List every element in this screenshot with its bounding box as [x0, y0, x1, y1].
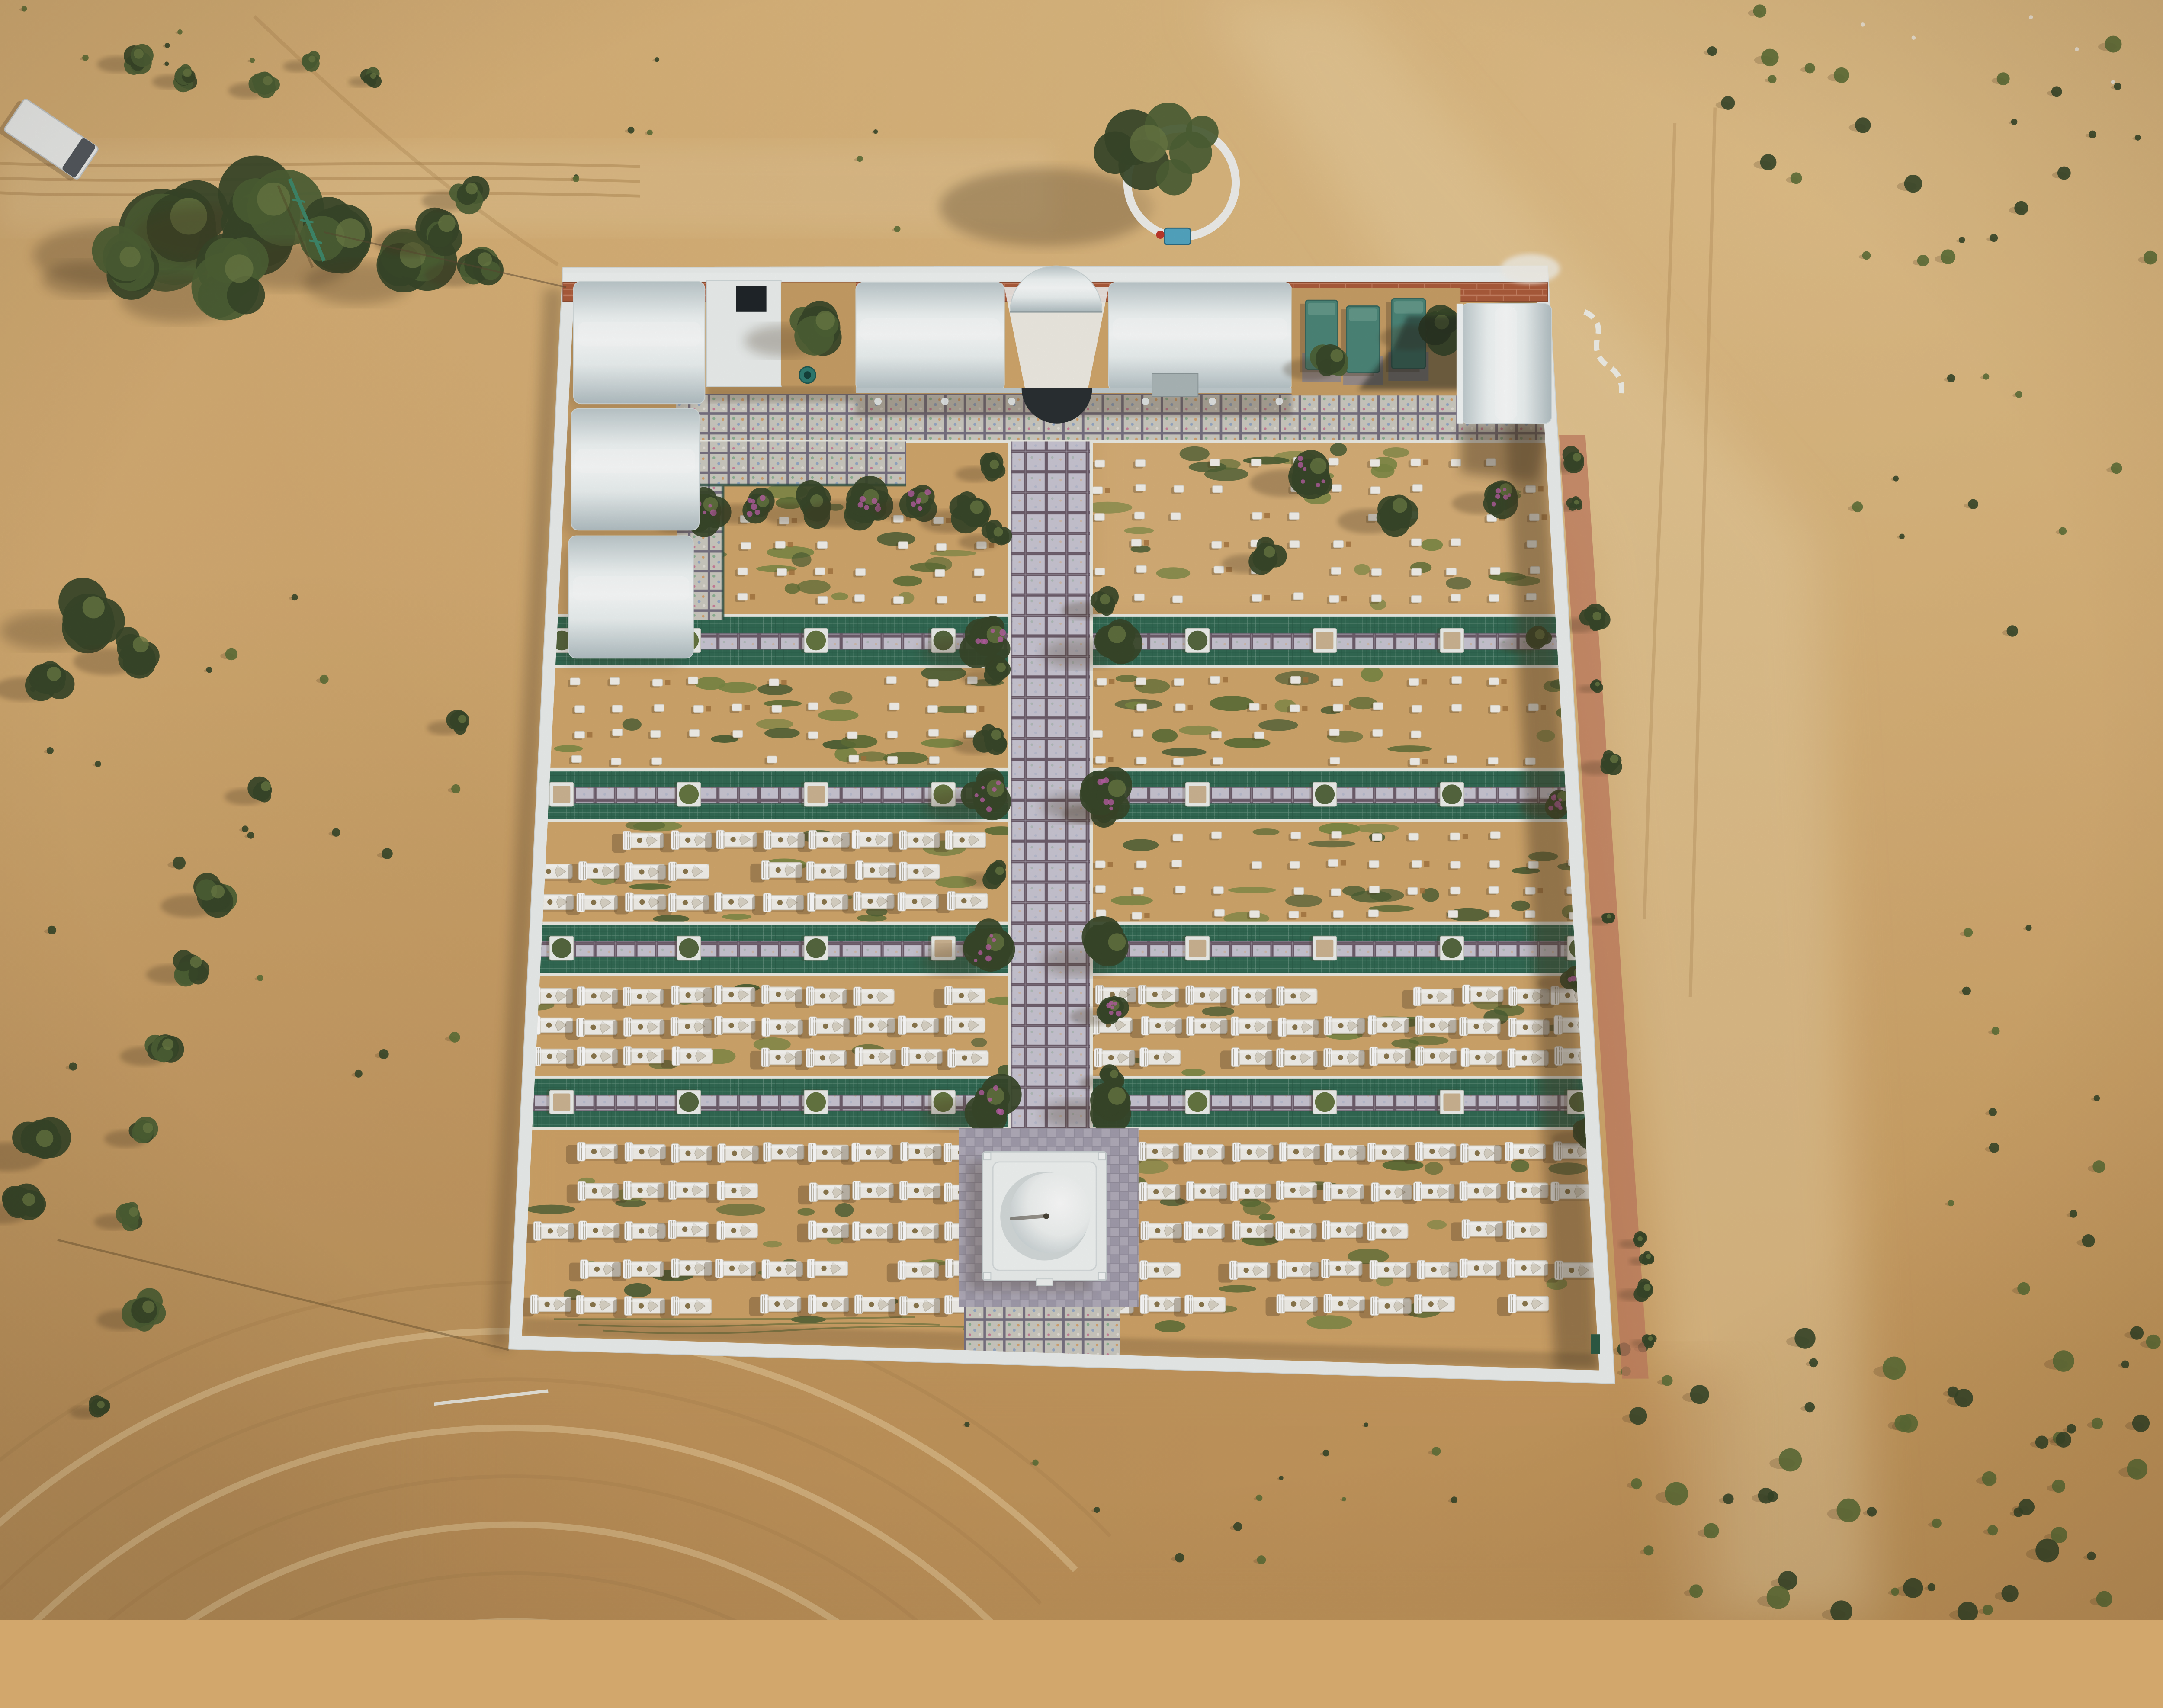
photo-grain: [0, 0, 2163, 1620]
aerial-photo: [0, 0, 2163, 1620]
